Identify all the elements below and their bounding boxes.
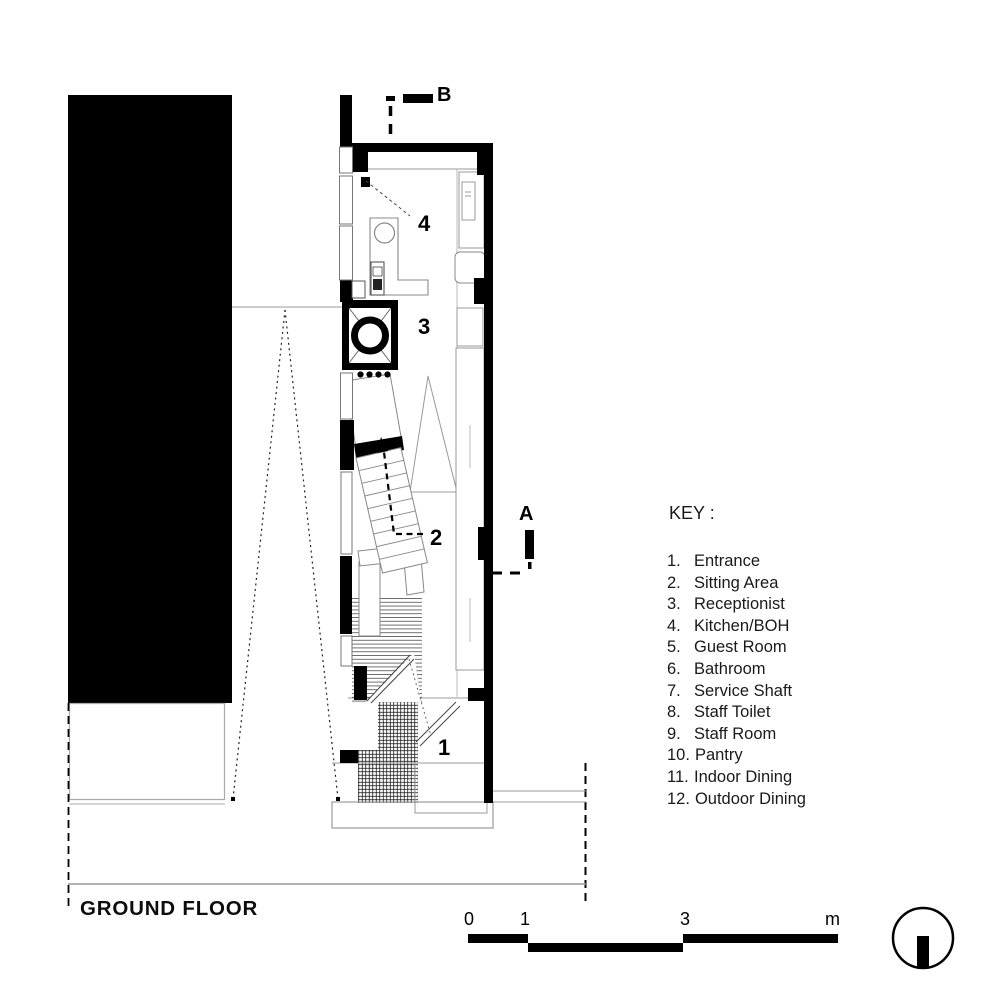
key-item-number: 8. — [667, 702, 689, 724]
kitchen-sink — [375, 223, 395, 243]
scale-label-3: 3 — [680, 909, 690, 930]
scale-label-0: 0 — [464, 909, 474, 930]
key-item-label: Staff Toilet — [694, 702, 770, 724]
key-item-label: Entrance — [694, 551, 760, 573]
section-label-b: B — [437, 84, 451, 107]
key-item-number: 5. — [667, 637, 689, 659]
key-item-number: 2. — [667, 573, 689, 595]
key-item-label: Kitchen/BOH — [694, 616, 789, 638]
section-marker-a — [492, 530, 534, 573]
floor-title: GROUND FLOOR — [80, 897, 258, 921]
section-label-a: A — [519, 503, 533, 526]
key-item-number: 11. — [667, 767, 689, 789]
key-item-label: Bathroom — [694, 659, 766, 681]
key-item-label: Guest Room — [694, 637, 787, 659]
key-item-label: Service Shaft — [694, 681, 792, 703]
key-item: 5. Guest Room — [667, 637, 887, 659]
furniture — [346, 172, 485, 670]
scale-label-m: m — [825, 909, 840, 930]
adjacent-building — [68, 95, 232, 804]
scale-bar — [468, 934, 838, 952]
key-item-label: Receptionist — [694, 594, 785, 616]
key-item-number: 10. — [667, 745, 690, 767]
room-number-receptionist: 3 — [418, 314, 430, 340]
floor-plan-drawing — [0, 0, 1000, 1000]
key-item-label: Pantry — [695, 745, 743, 767]
key-item-number: 4. — [667, 616, 689, 638]
key-item-label: Indoor Dining — [694, 767, 792, 789]
key-item-label: Outdoor Dining — [695, 789, 806, 811]
key-item: 1. Entrance — [667, 551, 887, 573]
room-number-entrance: 1 — [438, 735, 450, 761]
key-item-label: Staff Room — [694, 724, 776, 746]
key-legend: KEY : 1. Entrance 2. Sitting Area 3. Rec… — [667, 503, 887, 810]
void-triangle — [410, 376, 457, 492]
key-item-number: 9. — [667, 724, 689, 746]
key-item: 3. Receptionist — [667, 594, 887, 616]
key-item: 10. Pantry — [667, 745, 887, 767]
site-boundary-lines — [68, 703, 586, 908]
north-indicator-icon — [893, 908, 953, 968]
key-item: 4. Kitchen/BOH — [667, 616, 887, 638]
key-item-number: 12. — [667, 789, 690, 811]
floor-plan-page: B A 4 3 2 1 KEY : 1. Entrance 2. Sitting… — [0, 0, 1000, 1000]
key-item: 12. Outdoor Dining — [667, 789, 887, 811]
section-marker-b — [386, 94, 433, 140]
room-number-sitting-area: 2 — [430, 525, 442, 551]
key-item: 7. Service Shaft — [667, 681, 887, 703]
deck-bench — [359, 562, 380, 636]
kitchen-door-swing — [366, 181, 410, 216]
key-item: 6. Bathroom — [667, 659, 887, 681]
room-number-kitchen: 4 — [418, 211, 430, 237]
key-item-number: 7. — [667, 681, 689, 703]
sight-lines — [231, 307, 349, 801]
key-heading: KEY : — [669, 503, 887, 524]
service-shaft — [342, 300, 398, 370]
key-item: 2. Sitting Area — [667, 573, 887, 595]
key-item: 11. Indoor Dining — [667, 767, 887, 789]
key-item-number: 1. — [667, 551, 689, 573]
scale-label-1: 1 — [520, 909, 530, 930]
key-item: 8. Staff Toilet — [667, 702, 887, 724]
key-item-number: 6. — [667, 659, 689, 681]
key-item-label: Sitting Area — [694, 573, 778, 595]
key-item: 9. Staff Room — [667, 724, 887, 746]
key-item-number: 3. — [667, 594, 689, 616]
